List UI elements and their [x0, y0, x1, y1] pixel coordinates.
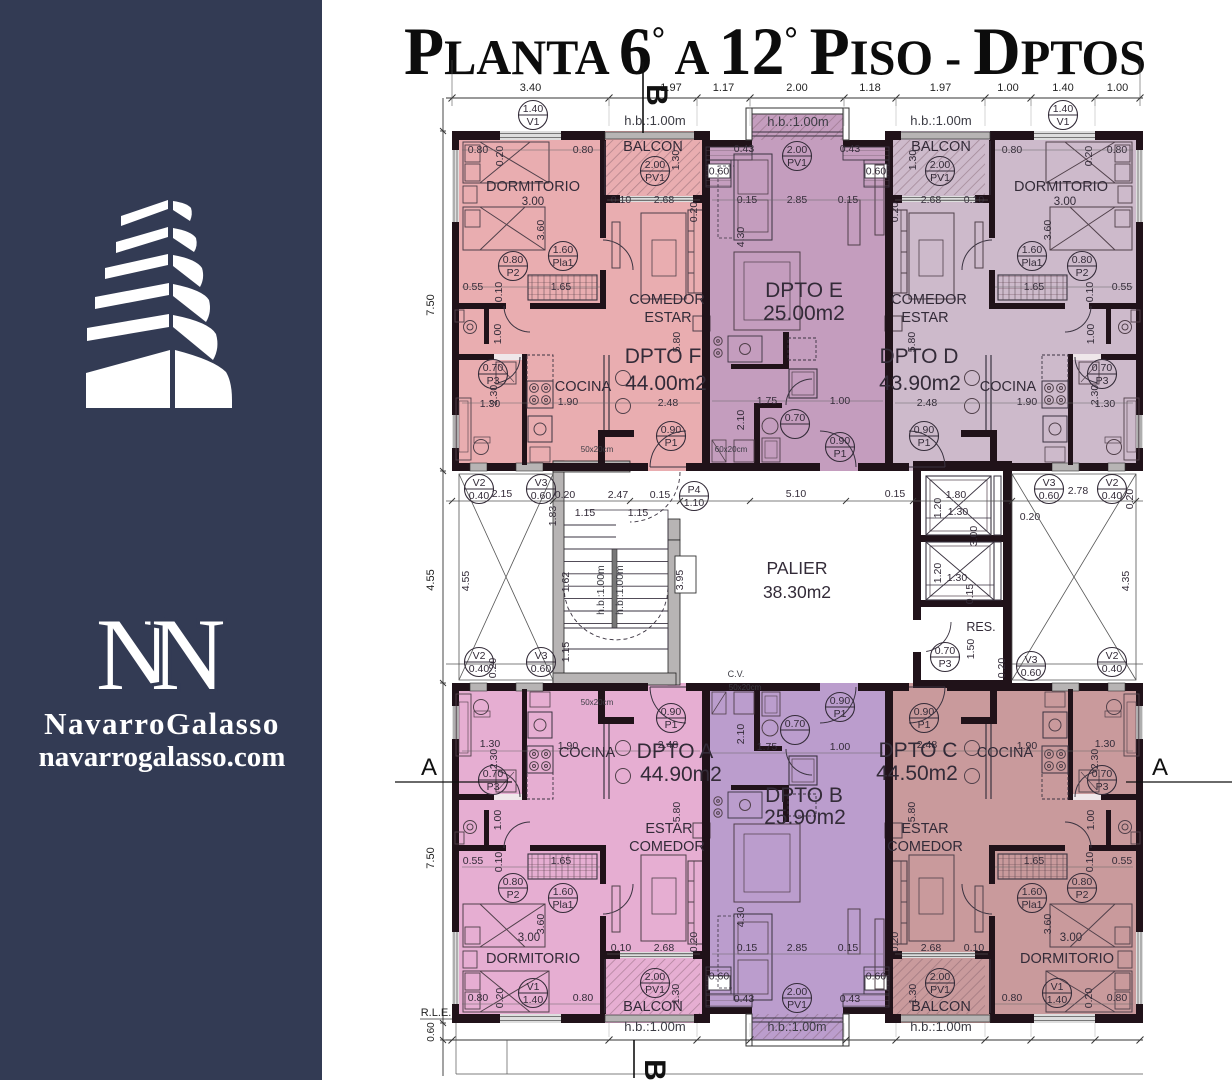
svg-text:0.20: 0.20 — [494, 988, 506, 1009]
svg-text:0.10: 0.10 — [493, 282, 505, 303]
svg-text:1.40: 1.40 — [523, 994, 544, 1006]
svg-text:0.80: 0.80 — [1072, 254, 1093, 266]
svg-text:0.60: 0.60 — [1039, 490, 1060, 502]
svg-text:Pla1: Pla1 — [552, 899, 573, 911]
svg-text:0.43: 0.43 — [734, 993, 755, 1005]
svg-text:P1: P1 — [918, 437, 931, 449]
svg-text:P1: P1 — [834, 708, 847, 720]
svg-text:P3: P3 — [1096, 781, 1109, 793]
svg-text:0.43: 0.43 — [734, 143, 755, 155]
svg-text:P1: P1 — [834, 448, 847, 460]
svg-text:0.15: 0.15 — [885, 488, 906, 500]
svg-text:38.30m2: 38.30m2 — [763, 582, 831, 602]
svg-text:1.30: 1.30 — [480, 398, 501, 410]
svg-text:P1: P1 — [918, 719, 931, 731]
svg-text:h.b.:1.00m: h.b.:1.00m — [624, 113, 685, 128]
svg-text:V3: V3 — [1025, 654, 1038, 666]
svg-text:h.b.:1.00m: h.b.:1.00m — [910, 1019, 971, 1034]
svg-text:0.15: 0.15 — [838, 942, 859, 954]
svg-text:1.60: 1.60 — [553, 886, 574, 898]
svg-text:2.00: 2.00 — [645, 971, 666, 983]
svg-text:A: A — [1152, 754, 1168, 781]
svg-text:h.b.:1.00m: h.b.:1.00m — [624, 1019, 685, 1034]
svg-text:0.90: 0.90 — [914, 706, 935, 718]
svg-text:A: A — [421, 754, 437, 781]
svg-text:50x20cm: 50x20cm — [729, 683, 762, 692]
svg-text:DORMITORIO: DORMITORIO — [486, 179, 580, 195]
svg-text:ESTAR: ESTAR — [901, 821, 948, 837]
svg-text:0.15: 0.15 — [737, 942, 758, 954]
svg-text:P2: P2 — [507, 267, 520, 279]
svg-text:COMEDOR: COMEDOR — [629, 292, 705, 308]
svg-text:1.15: 1.15 — [575, 507, 596, 519]
svg-text:1.15: 1.15 — [560, 642, 572, 663]
svg-text:1.00: 1.00 — [492, 810, 504, 831]
svg-text:COMEDOR: COMEDOR — [887, 839, 963, 855]
svg-text:PV1: PV1 — [787, 157, 807, 169]
svg-text:COCINA: COCINA — [555, 379, 612, 395]
svg-text:1.20: 1.20 — [932, 563, 944, 584]
svg-text:2.00: 2.00 — [786, 82, 807, 94]
svg-text:ESTAR: ESTAR — [644, 310, 691, 326]
svg-text:1.00: 1.00 — [1085, 810, 1097, 831]
svg-text:0.60: 0.60 — [531, 663, 552, 675]
svg-text:60x20cm: 60x20cm — [715, 445, 748, 454]
svg-text:5.80: 5.80 — [671, 802, 683, 823]
svg-text:PV1: PV1 — [787, 999, 807, 1011]
svg-text:1.90: 1.90 — [558, 396, 579, 408]
svg-text:50x20cm: 50x20cm — [581, 698, 614, 707]
svg-text:0.90: 0.90 — [830, 695, 851, 707]
svg-text:P1: P1 — [665, 719, 678, 731]
svg-text:0.55: 0.55 — [463, 855, 484, 867]
svg-text:25.90m2: 25.90m2 — [764, 806, 846, 829]
svg-text:3.60: 3.60 — [535, 220, 547, 241]
svg-text:1.30: 1.30 — [480, 738, 501, 750]
svg-text:2.78: 2.78 — [1068, 485, 1089, 497]
svg-text:0.70: 0.70 — [785, 412, 806, 424]
svg-text:B: B — [638, 1059, 671, 1080]
svg-text:P3: P3 — [939, 658, 952, 670]
svg-text:1.40: 1.40 — [1053, 103, 1074, 115]
svg-text:BALCON: BALCON — [911, 139, 971, 155]
svg-text:h.b.:1.00m: h.b.:1.00m — [910, 113, 971, 128]
svg-text:1.30: 1.30 — [1095, 398, 1116, 410]
svg-text:P4: P4 — [688, 484, 701, 496]
svg-text:COCINA: COCINA — [977, 745, 1034, 761]
svg-text:0.60: 0.60 — [426, 1022, 437, 1042]
svg-text:1.65: 1.65 — [1024, 855, 1045, 867]
svg-text:1.40: 1.40 — [1052, 82, 1073, 94]
svg-text:0.15: 0.15 — [650, 489, 671, 501]
svg-text:0.60: 0.60 — [531, 490, 552, 502]
svg-text:2.15: 2.15 — [492, 488, 513, 500]
svg-text:0.20: 0.20 — [688, 932, 700, 953]
svg-text:0.90: 0.90 — [830, 435, 851, 447]
svg-text:0.90: 0.90 — [661, 706, 682, 718]
svg-text:2.85: 2.85 — [787, 942, 808, 954]
svg-text:1.97: 1.97 — [930, 82, 951, 94]
svg-text:0.20: 0.20 — [688, 202, 700, 223]
svg-text:0.90: 0.90 — [661, 424, 682, 436]
svg-text:COCINA: COCINA — [559, 745, 616, 761]
svg-text:DORMITORIO: DORMITORIO — [1014, 179, 1108, 195]
svg-text:1.00: 1.00 — [492, 324, 504, 345]
svg-text:0.40: 0.40 — [469, 490, 490, 502]
svg-text:DORMITORIO: DORMITORIO — [486, 951, 580, 967]
svg-text:1.00: 1.00 — [1085, 324, 1097, 345]
svg-text:0.43: 0.43 — [840, 143, 861, 155]
svg-text:ESTAR: ESTAR — [645, 821, 692, 837]
svg-text:0.20: 0.20 — [996, 658, 1008, 679]
svg-text:3.95: 3.95 — [674, 570, 686, 591]
svg-text:1.18: 1.18 — [859, 82, 880, 94]
svg-text:0.80: 0.80 — [1002, 992, 1023, 1004]
svg-text:P2: P2 — [1076, 267, 1089, 279]
svg-text:2.68: 2.68 — [921, 942, 942, 954]
svg-text:V1: V1 — [1051, 981, 1064, 993]
svg-text:0.40: 0.40 — [469, 663, 490, 675]
svg-text:1.30: 1.30 — [947, 572, 968, 584]
svg-text:BALCON: BALCON — [623, 139, 683, 155]
svg-text:0.10: 0.10 — [1084, 852, 1096, 873]
svg-text:DPTO F: DPTO F — [625, 345, 702, 368]
svg-text:5.80: 5.80 — [906, 802, 918, 823]
svg-text:0.60: 0.60 — [709, 971, 730, 983]
svg-text:4.55: 4.55 — [460, 571, 472, 592]
svg-text:2.00: 2.00 — [930, 971, 951, 983]
svg-text:3.60: 3.60 — [1042, 914, 1054, 935]
svg-text:1.75: 1.75 — [757, 741, 778, 753]
svg-text:2.68: 2.68 — [654, 942, 675, 954]
svg-text:2.00: 2.00 — [787, 986, 808, 998]
svg-text:PV1: PV1 — [930, 172, 950, 184]
svg-text:4.35: 4.35 — [1120, 571, 1132, 592]
svg-text:4.30: 4.30 — [735, 227, 747, 248]
svg-text:Pla1: Pla1 — [1021, 257, 1042, 269]
svg-text:0.15: 0.15 — [964, 584, 976, 605]
svg-text:0.70: 0.70 — [483, 768, 504, 780]
svg-text:h.b.:1.00m: h.b.:1.00m — [614, 565, 626, 615]
svg-text:1.80: 1.80 — [946, 489, 967, 501]
svg-text:50x20cm: 50x20cm — [581, 445, 614, 454]
svg-text:V2: V2 — [473, 477, 486, 489]
svg-text:DPTO C: DPTO C — [879, 739, 958, 762]
svg-text:1.00: 1.00 — [830, 741, 851, 753]
svg-text:COMEDOR: COMEDOR — [629, 839, 705, 855]
svg-text:1.90: 1.90 — [1017, 396, 1038, 408]
svg-text:7.50: 7.50 — [425, 847, 437, 868]
svg-text:0.55: 0.55 — [1112, 855, 1133, 867]
svg-text:0.90: 0.90 — [914, 424, 935, 436]
svg-text:ESTAR: ESTAR — [901, 310, 948, 326]
svg-text:2.00: 2.00 — [787, 144, 808, 156]
svg-text:DORMITORIO: DORMITORIO — [1020, 951, 1114, 967]
svg-text:0.40: 0.40 — [1102, 663, 1123, 675]
svg-text:1.60: 1.60 — [1022, 886, 1043, 898]
svg-text:NavarroGalasso: NavarroGalasso — [44, 706, 280, 741]
svg-text:Pla1: Pla1 — [552, 257, 573, 269]
svg-text:RES.: RES. — [966, 620, 995, 634]
svg-text:0.40: 0.40 — [1102, 490, 1123, 502]
svg-text:3.00: 3.00 — [1060, 932, 1082, 944]
svg-text:0.70: 0.70 — [483, 362, 504, 374]
svg-text:0.20: 0.20 — [1083, 146, 1095, 167]
svg-text:0.70: 0.70 — [1092, 768, 1113, 780]
svg-text:h.b.:1.00m: h.b.:1.00m — [595, 565, 607, 615]
svg-text:0.20: 0.20 — [494, 146, 506, 167]
svg-text:3.00: 3.00 — [968, 526, 980, 547]
svg-text:Pla1: Pla1 — [1021, 899, 1042, 911]
svg-text:4.55: 4.55 — [425, 569, 437, 590]
svg-text:1.62: 1.62 — [560, 572, 572, 593]
svg-text:0.60: 0.60 — [866, 971, 887, 983]
svg-text:0.10: 0.10 — [493, 852, 505, 873]
svg-text:B: B — [640, 84, 673, 106]
svg-text:1.50: 1.50 — [965, 639, 977, 660]
svg-text:25.00m2: 25.00m2 — [763, 302, 845, 325]
svg-text:3.00: 3.00 — [522, 196, 544, 208]
svg-text:DPTO A: DPTO A — [637, 740, 714, 763]
svg-text:0.20: 0.20 — [555, 489, 576, 501]
svg-text:P2: P2 — [507, 889, 520, 901]
svg-text:1.15: 1.15 — [628, 507, 649, 519]
svg-text:V3: V3 — [1043, 477, 1056, 489]
svg-text:V3: V3 — [535, 650, 548, 662]
svg-text:1.30: 1.30 — [1095, 738, 1116, 750]
svg-text:1.40: 1.40 — [1047, 994, 1068, 1006]
svg-text:P3: P3 — [1096, 375, 1109, 387]
svg-text:0.80: 0.80 — [573, 992, 594, 1004]
svg-text:C.V.: C.V. — [728, 669, 745, 679]
svg-text:DPTO E: DPTO E — [765, 279, 843, 302]
svg-text:V2: V2 — [1106, 650, 1119, 662]
svg-text:V2: V2 — [1106, 477, 1119, 489]
svg-text:0.60: 0.60 — [866, 166, 887, 178]
svg-text:0.80: 0.80 — [1072, 876, 1093, 888]
svg-text:P1: P1 — [665, 437, 678, 449]
svg-text:7.50: 7.50 — [425, 294, 437, 315]
svg-text:h.b.:1.00m: h.b.:1.00m — [767, 114, 828, 129]
svg-text:PV1: PV1 — [930, 984, 950, 996]
svg-text:PALIER: PALIER — [767, 558, 828, 578]
svg-text:V3: V3 — [535, 477, 548, 489]
svg-text:44.50m2: 44.50m2 — [876, 762, 958, 785]
svg-text:0.70: 0.70 — [1092, 362, 1113, 374]
svg-text:1.40: 1.40 — [523, 103, 544, 115]
svg-text:44.00m2: 44.00m2 — [625, 372, 707, 395]
svg-text:0.43: 0.43 — [840, 993, 861, 1005]
svg-text:N: N — [151, 598, 225, 712]
svg-text:P2: P2 — [1076, 889, 1089, 901]
svg-text:h.b.:1.00m: h.b.:1.00m — [767, 1020, 826, 1034]
svg-text:1.60: 1.60 — [553, 244, 574, 256]
svg-text:P3: P3 — [487, 781, 500, 793]
svg-text:1.00: 1.00 — [1107, 82, 1128, 94]
svg-text:V2: V2 — [473, 650, 486, 662]
svg-text:PV1: PV1 — [645, 984, 665, 996]
svg-text:2.10: 2.10 — [735, 410, 747, 431]
svg-text:0.10: 0.10 — [611, 942, 632, 954]
svg-text:COMEDOR: COMEDOR — [891, 292, 967, 308]
svg-text:3.00: 3.00 — [1054, 196, 1076, 208]
svg-text:0.60: 0.60 — [709, 166, 730, 178]
svg-text:0.80: 0.80 — [1107, 992, 1128, 1004]
svg-text:1.30: 1.30 — [948, 506, 969, 518]
svg-text:1.60: 1.60 — [1022, 244, 1043, 256]
svg-text:V1: V1 — [1057, 116, 1070, 128]
svg-text:1.10: 1.10 — [684, 497, 705, 509]
svg-text:0.80: 0.80 — [503, 876, 524, 888]
svg-text:0.70: 0.70 — [935, 645, 956, 657]
svg-text:V1: V1 — [527, 116, 540, 128]
svg-text:BALCON: BALCON — [911, 999, 971, 1015]
svg-text:3.40: 3.40 — [520, 82, 541, 94]
svg-text:R.L.E.: R.L.E. — [421, 1007, 452, 1019]
svg-text:2.00: 2.00 — [930, 159, 951, 171]
svg-text:0.10: 0.10 — [964, 942, 985, 954]
svg-text:5.10: 5.10 — [786, 488, 807, 500]
svg-text:0.20: 0.20 — [1020, 511, 1041, 523]
svg-text:1.00: 1.00 — [997, 82, 1018, 94]
svg-text:BALCON: BALCON — [623, 999, 683, 1015]
svg-text:PV1: PV1 — [645, 172, 665, 184]
svg-text:2.10: 2.10 — [735, 724, 747, 745]
svg-text:0.80: 0.80 — [468, 992, 489, 1004]
svg-text:0.80: 0.80 — [503, 254, 524, 266]
svg-text:COCINA: COCINA — [980, 379, 1037, 395]
svg-text:3.00: 3.00 — [518, 932, 540, 944]
svg-text:DPTO B: DPTO B — [765, 784, 843, 807]
svg-text:1.65: 1.65 — [551, 855, 572, 867]
svg-text:2.00: 2.00 — [645, 159, 666, 171]
svg-text:4.30: 4.30 — [735, 907, 747, 928]
svg-text:navarrogalasso.com: navarrogalasso.com — [39, 741, 286, 773]
svg-text:1.17: 1.17 — [713, 82, 734, 94]
svg-text:0.20: 0.20 — [1083, 988, 1095, 1009]
svg-text:44.90m2: 44.90m2 — [640, 763, 722, 786]
svg-text:2.47: 2.47 — [608, 489, 629, 501]
svg-text:P3: P3 — [487, 375, 500, 387]
svg-text:V1: V1 — [527, 981, 540, 993]
svg-text:0.70: 0.70 — [785, 718, 806, 730]
svg-text:0.10: 0.10 — [1084, 282, 1096, 303]
svg-text:DPTO D: DPTO D — [880, 345, 959, 368]
svg-text:0.60: 0.60 — [1021, 667, 1042, 679]
svg-text:3.60: 3.60 — [1042, 220, 1054, 241]
svg-text:43.90m2: 43.90m2 — [879, 372, 961, 395]
